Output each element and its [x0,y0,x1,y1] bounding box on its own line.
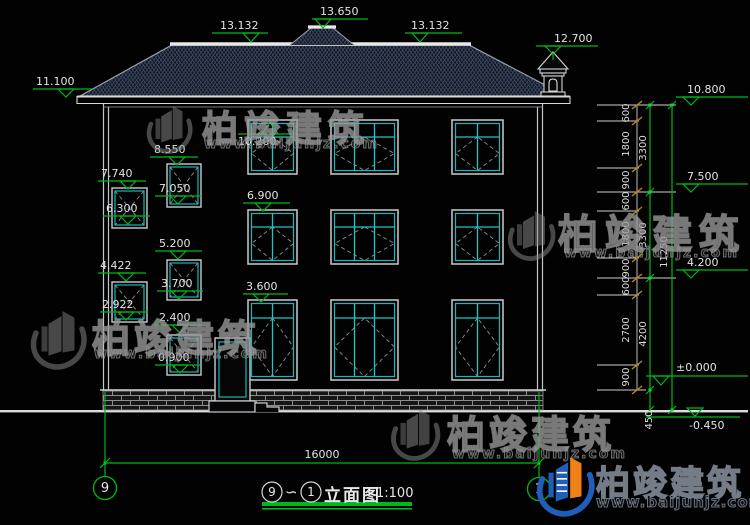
elev-label-stair-b2-top: 5.200 [159,238,191,250]
elev-label-ridge-center: 13.650 [320,6,359,18]
right-wall [538,104,543,391]
elev-label-stair-a1-top: 7.740 [101,168,133,180]
marker-10800 [676,97,748,105]
elev-label-ridge-left: 13.132 [220,20,259,32]
marker-3600 [243,294,288,302]
drawing-scale: 1:100 [376,486,413,501]
watermark-url-right: www.baijunjz.com [564,245,739,261]
marker-12700 [536,46,598,60]
door-plinth [209,401,255,412]
elev-label-stair-a1-bottom: 6.300 [106,203,138,215]
window-1f-right [452,300,503,380]
marker-13132-right [405,33,462,42]
title-digit-right: 1 [301,485,321,499]
elev-label-right-zero: ±0.000 [676,362,717,374]
marker-4422 [98,273,146,281]
window-1f-center [331,300,398,380]
brand-url: www.baijunjz.com [596,493,750,511]
roof-center-gable [290,28,354,45]
window-2f-left [248,210,297,264]
elev-label-ridge-right: 13.132 [411,20,450,32]
marker-5200 [155,251,202,259]
dim-450: 450 [644,398,656,442]
elev-label-right-eave: 10.800 [687,84,726,96]
windows-floor2 [248,210,503,264]
watermark-url-top: www.baijunjz.com [204,136,379,152]
title-separator: ∽ [285,483,298,501]
marker-7050 [155,196,201,204]
dim-600-3: 600 [621,264,633,308]
elev-label-stair-b1-top: 8.550 [154,144,186,156]
dim-16000-label: 16000 [292,449,352,461]
elev-label-eave-left: 11.100 [36,76,75,88]
dim-900-3: 900 [621,355,633,399]
dim-2700: 2700 [621,308,633,352]
elev-label-win2f-top: 6.900 [247,190,279,202]
marker-6300 [103,216,150,224]
elev-label-stair-b1-bottom: 7.050 [159,183,191,195]
elev-label-stair-b2-bottom: 3.700 [161,278,193,290]
watermark-url-left: www.baijunjz.com [94,346,269,362]
elev-label-cupola: 12.700 [554,33,593,45]
marker-minus-0450 [646,408,740,417]
dim-4200: 4200 [638,312,650,356]
dim-3300-1: 3300 [638,126,650,170]
elev-label-stair-a2-top: 4.422 [100,260,132,272]
drawing-title: 立面图 [324,481,381,506]
window-2f-right [452,210,503,264]
marker-7500 [676,184,748,192]
marker-13132-left [212,33,268,42]
cad-elevation-screenshot: 11.100 13.132 13.650 13.132 12.700 10.80… [0,0,750,525]
windows-floor1 [248,300,503,380]
marker-zero [646,376,748,385]
title-digit-left: 9 [262,485,282,499]
window-3f-right [452,120,503,174]
elev-label-right-floor3: 7.500 [687,171,719,183]
elev-label-right-ground: -0.450 [689,420,724,432]
elev-label-win1f-top: 3.600 [246,281,278,293]
window-2f-center [331,210,398,264]
grid-digit-9: 9 [95,481,115,496]
roof [77,27,570,107]
grid-digit-1: 1 [529,482,549,497]
marker-4200 [676,270,748,278]
marker-3700 [157,291,203,299]
